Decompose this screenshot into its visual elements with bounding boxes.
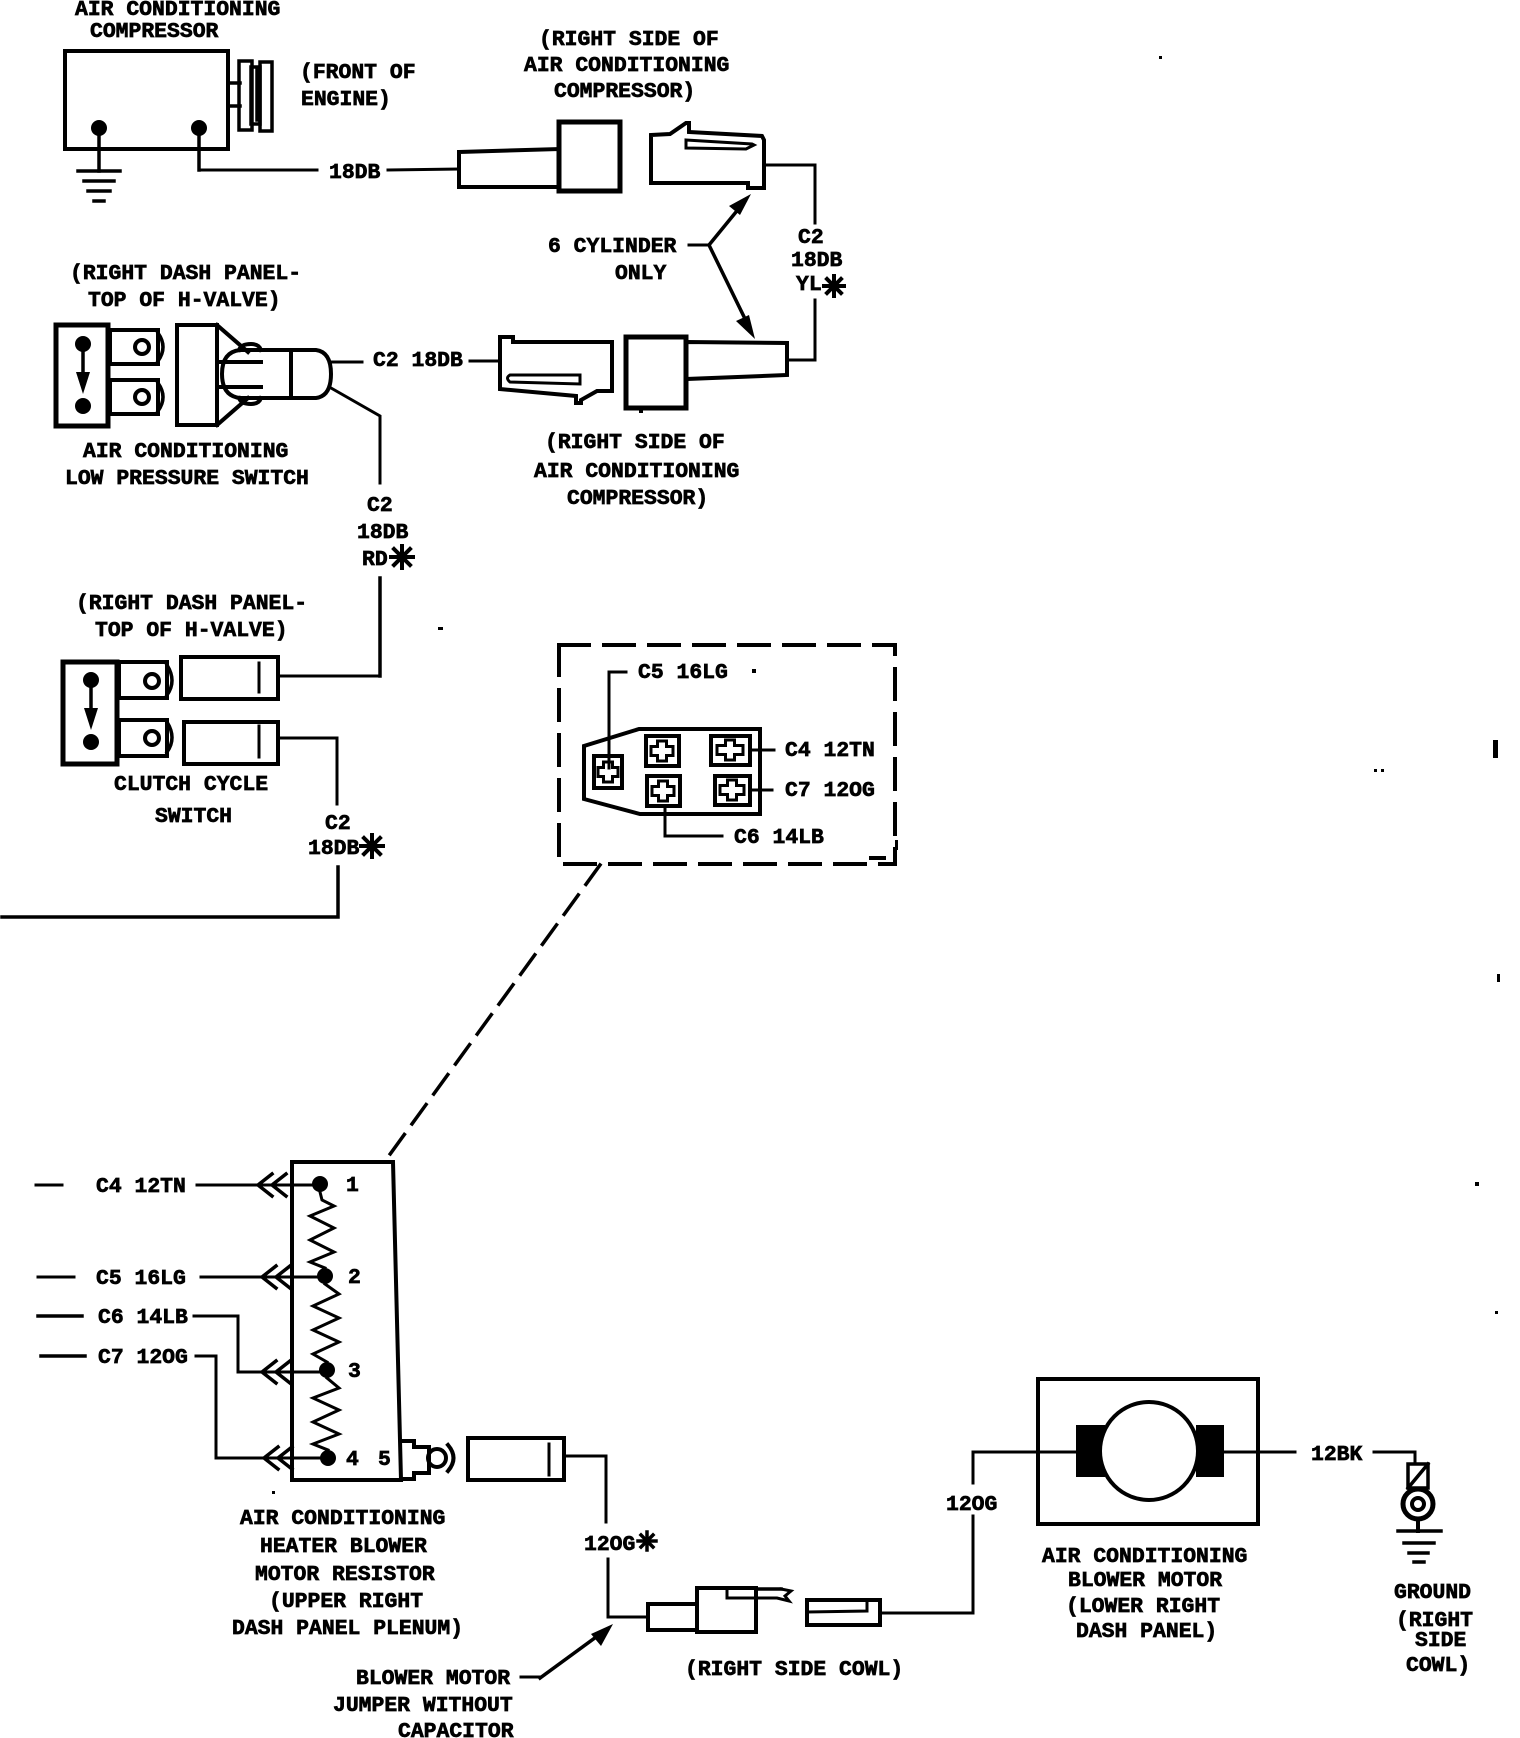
svg-text:SIDE: SIDE [1415, 1629, 1466, 1653]
svg-text:C4 12TN: C4 12TN [785, 739, 875, 763]
svg-text:C2: C2 [798, 226, 824, 250]
svg-text:GROUND: GROUND [1394, 1581, 1471, 1605]
svg-text:AIR CONDITIONING: AIR CONDITIONING [524, 54, 729, 78]
svg-text:4: 4 [346, 1448, 359, 1472]
svg-text:LOW PRESSURE SWITCH: LOW PRESSURE SWITCH [65, 467, 309, 491]
svg-text:C5 16LG: C5 16LG [638, 661, 728, 685]
svg-text:(UPPER RIGHT: (UPPER RIGHT [269, 1590, 423, 1614]
svg-text:C7 12OG: C7 12OG [785, 779, 875, 803]
svg-text:COWL): COWL) [1406, 1654, 1470, 1678]
svg-text:SWITCH: SWITCH [155, 805, 232, 829]
svg-text:JUMPER WITHOUT: JUMPER WITHOUT [333, 1694, 513, 1718]
svg-text:COMPRESSOR: COMPRESSOR [90, 20, 219, 44]
svg-text:AIR CONDITIONING: AIR CONDITIONING [83, 440, 288, 464]
svg-text:C5 16LG: C5 16LG [96, 1267, 186, 1291]
svg-text:18DB: 18DB [791, 249, 843, 273]
svg-text:CAPACITOR: CAPACITOR [398, 1720, 514, 1738]
svg-text:ONLY: ONLY [615, 262, 667, 286]
svg-text:AIR CONDITIONING: AIR CONDITIONING [240, 1507, 445, 1531]
svg-text:YL: YL [796, 273, 822, 297]
svg-text:C2: C2 [325, 812, 351, 836]
svg-text:BLOWER MOTOR: BLOWER MOTOR [356, 1667, 510, 1691]
svg-text:12OG: 12OG [946, 1493, 997, 1517]
svg-text:TOP OF H-VALVE): TOP OF H-VALVE) [88, 289, 281, 313]
svg-text:AIR CONDITIONING: AIR CONDITIONING [534, 460, 739, 484]
svg-text:AIR CONDITIONING: AIR CONDITIONING [75, 0, 280, 22]
svg-text:6 CYLINDER: 6 CYLINDER [548, 235, 677, 259]
svg-text:COMPRESSOR): COMPRESSOR) [554, 80, 695, 104]
svg-text:18DB: 18DB [357, 521, 409, 545]
svg-text:(RIGHT SIDE COWL): (RIGHT SIDE COWL) [685, 1658, 903, 1682]
svg-text:2: 2 [348, 1266, 361, 1290]
svg-text:CLUTCH CYCLE: CLUTCH CYCLE [114, 773, 268, 797]
svg-text:12BK: 12BK [1311, 1443, 1363, 1467]
svg-text:(RIGHT SIDE OF: (RIGHT SIDE OF [539, 28, 719, 52]
svg-text:C2: C2 [367, 494, 393, 518]
svg-text:12OG: 12OG [584, 1533, 635, 1557]
svg-text:HEATER BLOWER: HEATER BLOWER [260, 1535, 427, 1559]
svg-text:C7 12OG: C7 12OG [98, 1346, 188, 1370]
svg-text:C6 14LB: C6 14LB [734, 826, 824, 850]
svg-text:18DB: 18DB [308, 837, 360, 861]
svg-text:C2 18DB: C2 18DB [373, 349, 463, 373]
svg-text:18DB: 18DB [329, 161, 381, 185]
svg-text:C6 14LB: C6 14LB [98, 1306, 188, 1330]
svg-text:(FRONT OF: (FRONT OF [300, 61, 416, 85]
svg-text:5: 5 [378, 1448, 391, 1472]
svg-text:1: 1 [346, 1174, 359, 1198]
svg-text:(RIGHT DASH PANEL-: (RIGHT DASH PANEL- [70, 262, 301, 286]
svg-text:BLOWER MOTOR: BLOWER MOTOR [1068, 1569, 1222, 1593]
svg-text:AIR CONDITIONING: AIR CONDITIONING [1042, 1545, 1247, 1569]
svg-text:COMPRESSOR): COMPRESSOR) [567, 487, 708, 511]
svg-text:TOP OF H-VALVE): TOP OF H-VALVE) [95, 619, 288, 643]
svg-text:RD: RD [362, 548, 388, 572]
svg-text:(RIGHT SIDE OF: (RIGHT SIDE OF [545, 431, 725, 455]
svg-text:DASH PANEL PLENUM): DASH PANEL PLENUM) [232, 1617, 463, 1641]
svg-text:DASH PANEL): DASH PANEL) [1076, 1620, 1217, 1644]
svg-text:ENGINE): ENGINE) [301, 88, 391, 112]
svg-text:MOTOR RESISTOR: MOTOR RESISTOR [255, 1563, 435, 1587]
svg-text:3: 3 [348, 1360, 361, 1384]
svg-text:C4 12TN: C4 12TN [96, 1175, 186, 1199]
svg-text:(RIGHT DASH PANEL-: (RIGHT DASH PANEL- [76, 592, 307, 616]
svg-text:(LOWER RIGHT: (LOWER RIGHT [1066, 1595, 1220, 1619]
